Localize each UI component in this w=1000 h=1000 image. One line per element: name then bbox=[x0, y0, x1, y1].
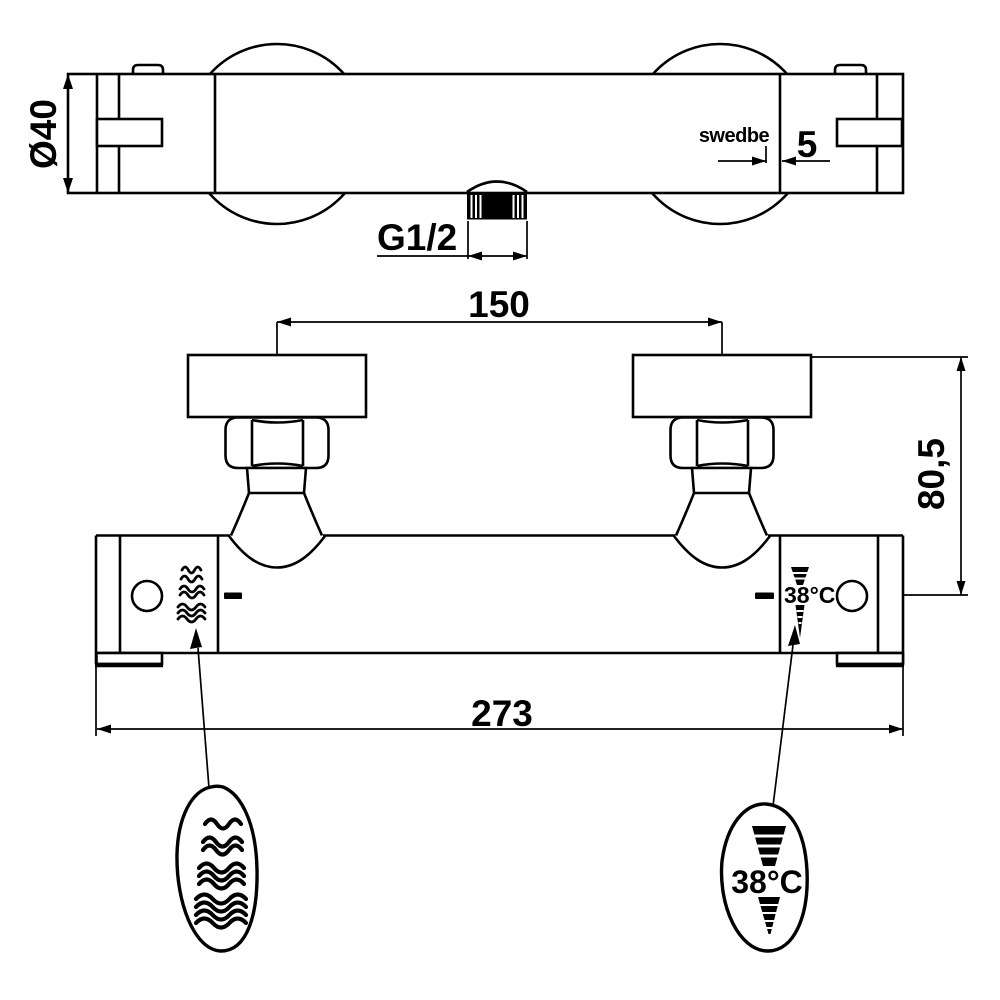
front-view: 38°C 150 80,5 273 bbox=[95, 284, 968, 736]
dim-inlet-spacing: 150 bbox=[277, 284, 722, 354]
right-mount-foot bbox=[837, 653, 903, 664]
dim-overall-width-label: 273 bbox=[471, 693, 533, 734]
body-temperature-label: 38°C bbox=[784, 582, 835, 608]
drawing-sheet: Ø40 swedbe 5 G1/2 bbox=[0, 0, 1000, 1000]
arrow-left-icon bbox=[277, 318, 291, 327]
right-leader-line bbox=[773, 645, 793, 806]
right-junction-curve bbox=[674, 536, 770, 568]
arrow-right-icon bbox=[513, 252, 527, 261]
dim-outlet-thread-label: G1/2 bbox=[377, 217, 457, 258]
wave-line bbox=[182, 567, 201, 573]
dim-outlet-thread: G1/2 bbox=[377, 217, 527, 261]
right-wall-plate bbox=[633, 355, 811, 417]
dim-inlet-spacing-label: 150 bbox=[468, 284, 530, 325]
balloon-temperature-label: 38°C bbox=[731, 864, 803, 900]
right-knob-circle bbox=[837, 581, 867, 611]
mixer-bar-body bbox=[68, 74, 903, 193]
left-hex-nut bbox=[226, 418, 329, 469]
right-leader-arrow-icon bbox=[788, 625, 800, 646]
left-leader-line bbox=[198, 648, 209, 788]
arrow-up-icon bbox=[957, 357, 966, 371]
dim-mount-height: 80,5 bbox=[812, 357, 968, 595]
left-inlet-flare bbox=[231, 493, 322, 536]
left-junction-curve bbox=[229, 536, 325, 568]
left-wall-plate bbox=[188, 355, 366, 417]
right-inlet-flare bbox=[676, 493, 767, 536]
right-inlet-cylinder bbox=[692, 468, 751, 493]
left-index-dash-icon bbox=[224, 593, 242, 600]
arrow-right-icon bbox=[889, 725, 903, 734]
hot-water-waves-icon bbox=[178, 567, 205, 622]
dim-bar-diameter-label: Ø40 bbox=[23, 99, 64, 169]
left-mount-foot bbox=[97, 653, 163, 664]
dim-logo-offset-label: 5 bbox=[797, 124, 818, 165]
detail-balloons: 38°C bbox=[177, 625, 807, 951]
arrow-left-icon bbox=[468, 252, 482, 261]
left-clip-plate bbox=[97, 119, 162, 146]
right-hex-nut bbox=[671, 418, 774, 469]
right-index-dash-icon bbox=[755, 593, 774, 600]
left-knob-circle bbox=[132, 581, 162, 611]
dim-mount-height-label: 80,5 bbox=[911, 438, 952, 510]
wave-line bbox=[181, 576, 202, 582]
top-view: Ø40 swedbe 5 G1/2 bbox=[23, 44, 903, 261]
dim-overall-width: 273 bbox=[96, 664, 903, 736]
arrow-down-icon bbox=[957, 581, 966, 595]
right-clip-plate bbox=[837, 119, 902, 146]
technical-drawing-canvas: Ø40 swedbe 5 G1/2 bbox=[0, 0, 1000, 1000]
arrow-right-icon bbox=[708, 318, 722, 327]
dim-line bbox=[277, 322, 722, 354]
arrow-left-icon bbox=[97, 725, 111, 734]
dim-bar-diameter: Ø40 bbox=[23, 74, 73, 193]
brand-label: swedbe bbox=[699, 125, 770, 147]
left-leader-arrow-icon bbox=[190, 628, 202, 649]
left-inlet-cylinder bbox=[247, 468, 306, 493]
